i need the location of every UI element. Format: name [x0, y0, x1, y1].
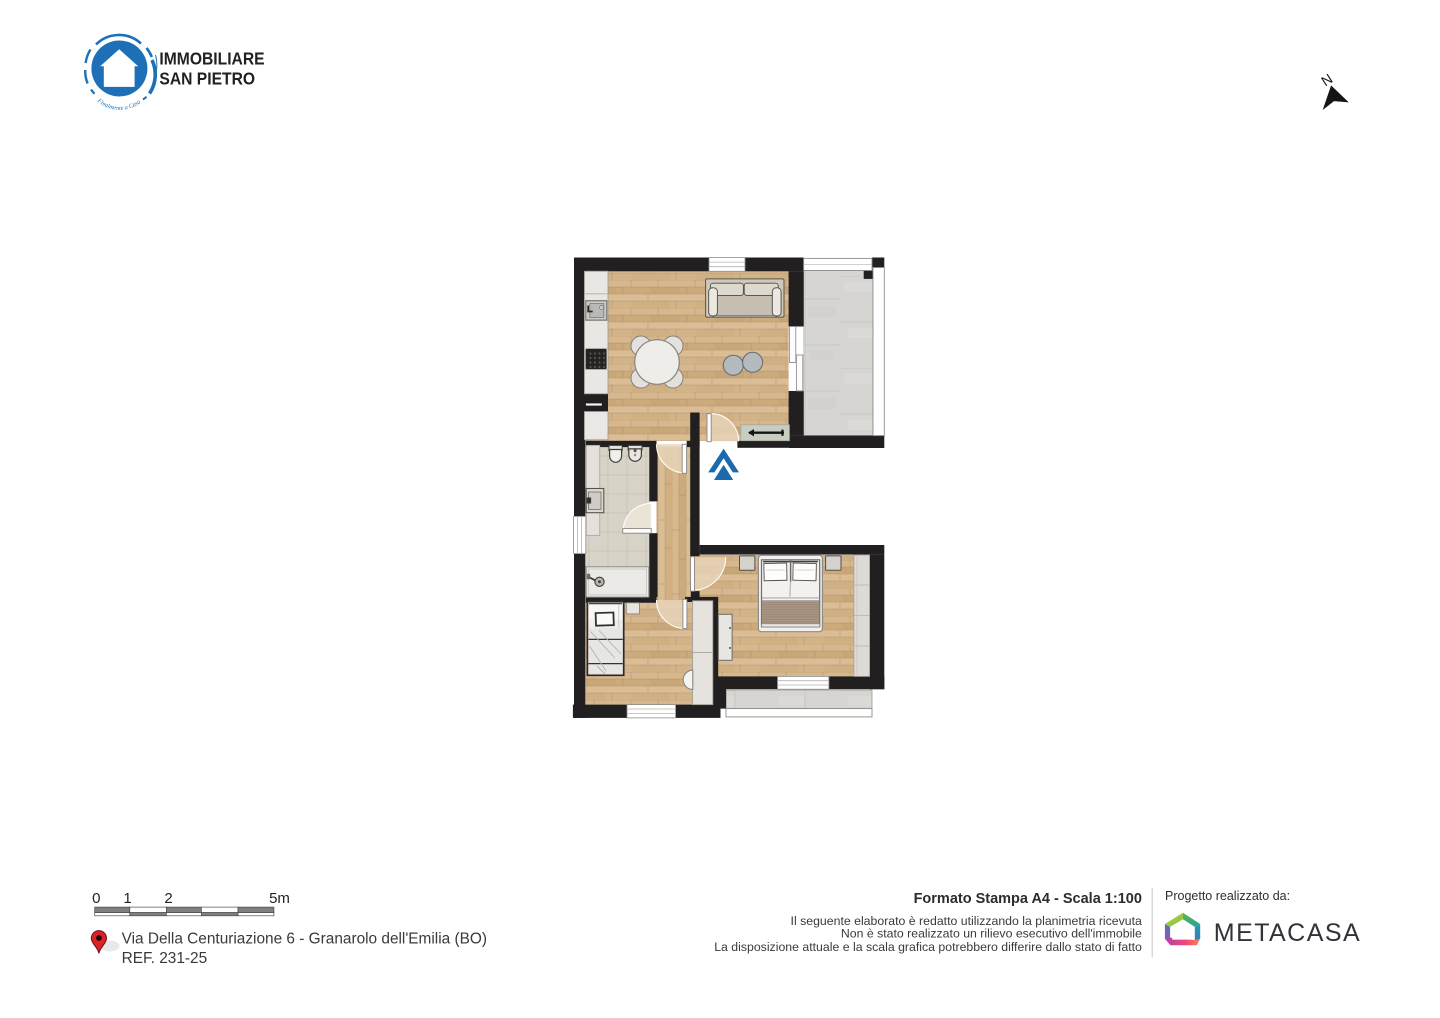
svg-text:Non è stato realizzato un rili: Non è stato realizzato un rilievo esecut…: [841, 926, 1142, 940]
svg-text:1: 1: [123, 890, 131, 907]
svg-text:2: 2: [164, 890, 172, 907]
svg-text:REF. 231-25: REF. 231-25: [122, 950, 208, 967]
svg-text:SAN PIETRO: SAN PIETRO: [159, 69, 255, 89]
svg-text:5m: 5m: [269, 890, 290, 907]
svg-text:La disposizione attuale e la s: La disposizione attuale e la scala grafi…: [714, 940, 1142, 954]
svg-text:IMMOBILIARE: IMMOBILIARE: [159, 48, 264, 68]
svg-text:METACASA: METACASA: [1214, 919, 1361, 947]
svg-text:Progetto realizzato da:: Progetto realizzato da:: [1165, 889, 1290, 903]
svg-text:0: 0: [92, 890, 100, 907]
svg-text:Formato Stampa A4 - Scala 1:10: Formato Stampa A4 - Scala 1:100: [914, 891, 1142, 907]
svg-text:Via Della Centuriazione 6 - Gr: Via Della Centuriazione 6 - Granarolo de…: [122, 930, 487, 947]
